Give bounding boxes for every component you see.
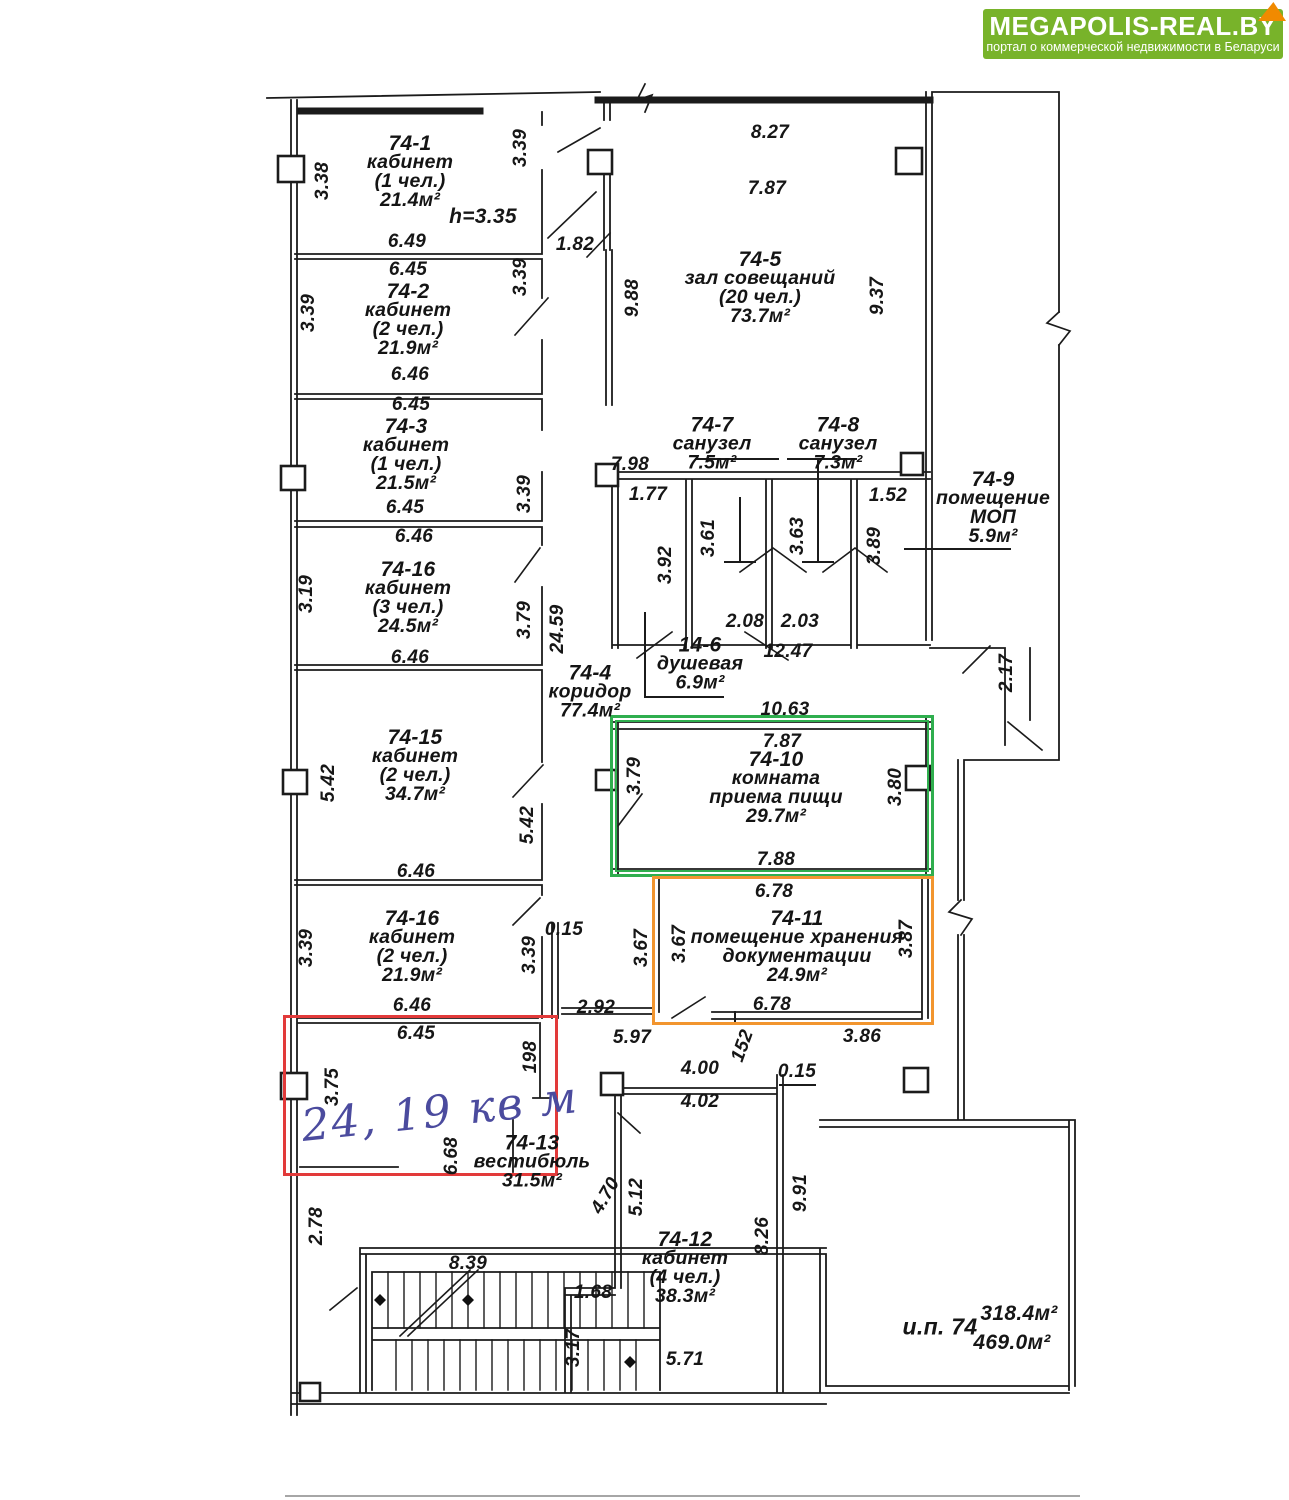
- dim-label: 6.68: [441, 1137, 463, 1175]
- site-logo[interactable]: MEGAPOLIS-REAL.BY портал о коммерческой …: [983, 9, 1283, 59]
- dim-label: 3.39: [510, 129, 532, 167]
- dim-label: 3.39: [296, 929, 318, 967]
- dim-label: 6.78: [755, 881, 793, 903]
- dim-label: 3.63: [787, 517, 809, 555]
- dim-label: 8.26: [752, 1217, 774, 1255]
- dim-label: 3.89: [864, 527, 886, 565]
- room-label-74-7: 74-7санузел7.5м²: [673, 416, 752, 473]
- room-label-74-5: 74-5зал совещаний(20 чел.)73.7м²: [685, 250, 836, 326]
- dim-label: 9.88: [622, 279, 644, 317]
- room-label-74-12: 74-12кабинет(4 чел.)38.3м²: [642, 1230, 728, 1306]
- dim-label: 6.46: [393, 995, 431, 1017]
- room-label-74-9: 74-9помещениеМОП5.9м²: [936, 470, 1050, 546]
- dim-label: 2.17: [996, 654, 1018, 692]
- dim-label: 5.42: [517, 806, 539, 844]
- dim-label: 3.61: [698, 519, 720, 557]
- room-label-74-10: 74-10комнатаприема пищи29.7м²: [709, 750, 842, 826]
- room-label-74-13: 74-13вестибюль31.5м²: [474, 1134, 591, 1191]
- room-label-74-3: 74-3кабинет(1 чел.)21.5м²: [363, 417, 449, 493]
- dim-label: 6.46: [395, 526, 433, 548]
- room-label-74-4: 74-4коридор77.4м²: [549, 664, 632, 721]
- dim-label: 1.52: [869, 485, 907, 507]
- dim-label: 6.45: [389, 259, 427, 281]
- totals-area-top: 318.4м²: [980, 1302, 1057, 1326]
- dim-label: 3.86: [843, 1026, 881, 1048]
- room-label-74-1: 74-1кабинет(1 чел.)21.4м²: [367, 134, 453, 210]
- dim-label: 198: [520, 1041, 542, 1074]
- dim-label: 5.42: [318, 764, 340, 802]
- dim-label: 1.68: [574, 1282, 612, 1304]
- dim-label: 6.46: [391, 647, 429, 669]
- dim-label: 2.03: [781, 611, 819, 633]
- dim-label: 3.39: [510, 258, 532, 296]
- dim-label: 3.79: [624, 757, 646, 795]
- dim-label: 8.27: [751, 122, 789, 144]
- dim-label: 1.82: [556, 234, 594, 256]
- logo-subtitle: портал о коммерческой недвижимости в Бел…: [983, 41, 1283, 54]
- scan-artifact-line: [285, 1495, 1080, 1497]
- dim-label: 6.49: [388, 231, 426, 253]
- dim-label: 3.39: [514, 475, 536, 513]
- dim-label: 9.37: [867, 277, 889, 315]
- dim-label: 5.12: [626, 1178, 648, 1216]
- dim-label: 3.87: [896, 920, 918, 958]
- dim-label: 3.39: [519, 936, 541, 974]
- dim-label: 3.67: [669, 925, 691, 963]
- dim-label: 9.91: [790, 1174, 812, 1212]
- dim-label: 6.45: [392, 394, 430, 416]
- dim-label: 3.79: [514, 601, 536, 639]
- dim-label: 3.17: [563, 1329, 585, 1367]
- totals-label: и.п. 74: [903, 1314, 978, 1341]
- dim-label: 7.87: [763, 731, 801, 753]
- logo-title: MEGAPOLIS-REAL.BY: [983, 12, 1283, 41]
- room-label-74-11: 74-11помещение хранениядокументации24.9м…: [691, 909, 904, 985]
- dim-label: 7.88: [757, 849, 795, 871]
- dim-label: 0.15: [778, 1061, 816, 1083]
- height-note: h=3.35: [449, 205, 517, 229]
- totals-area-bottom: 469.0м²: [973, 1331, 1050, 1355]
- dim-label: 6.45: [397, 1023, 435, 1045]
- dim-label: 6.78: [753, 994, 791, 1016]
- dim-label: 4.00: [681, 1058, 719, 1080]
- dim-label: 2.78: [306, 1207, 328, 1245]
- dim-label: 2.92: [577, 997, 615, 1019]
- floorplan-canvas: 74-1кабинет(1 чел.)21.4м² 74-2кабинет(2 …: [0, 0, 1289, 1500]
- dim-label: 5.71: [666, 1349, 704, 1371]
- dim-label: 4.02: [681, 1091, 719, 1113]
- dim-label: 3.39: [298, 294, 320, 332]
- dim-label: 7.87: [748, 178, 786, 200]
- dim-label: 2.08: [726, 611, 764, 633]
- dim-label: 3.67: [631, 929, 653, 967]
- dim-label: 10.63: [760, 699, 809, 721]
- dim-label: 3.80: [885, 768, 907, 806]
- dim-label: 8.39: [449, 1253, 487, 1275]
- dim-label: 5.97: [613, 1027, 651, 1049]
- dim-label: 0.15: [545, 919, 583, 941]
- dim-label: 12.47: [763, 641, 812, 663]
- room-label-74-16a: 74-16кабинет(3 чел.)24.5м²: [365, 560, 451, 636]
- dim-label: 3.38: [312, 162, 334, 200]
- room-label-74-2: 74-2кабинет(2 чел.)21.9м²: [365, 282, 451, 358]
- room-label-74-15: 74-15кабинет(2 чел.)34.7м²: [372, 728, 458, 804]
- room-label-74-8: 74-8санузел7.3м²: [799, 416, 878, 473]
- dim-label: 6.46: [397, 861, 435, 883]
- dim-label: 6.46: [391, 364, 429, 386]
- room-label-14-6: 14-6душевая6.9м²: [657, 636, 743, 693]
- dim-label: 3.19: [296, 575, 318, 613]
- dim-label: 24.59: [547, 604, 569, 653]
- dim-label: 7.98: [611, 454, 649, 476]
- dim-label: 6.45: [386, 497, 424, 519]
- room-label-74-16b: 74-16кабинет(2 чел.)21.9м²: [369, 909, 455, 985]
- dim-label: 1.77: [629, 484, 667, 506]
- dim-label: 3.92: [655, 546, 677, 584]
